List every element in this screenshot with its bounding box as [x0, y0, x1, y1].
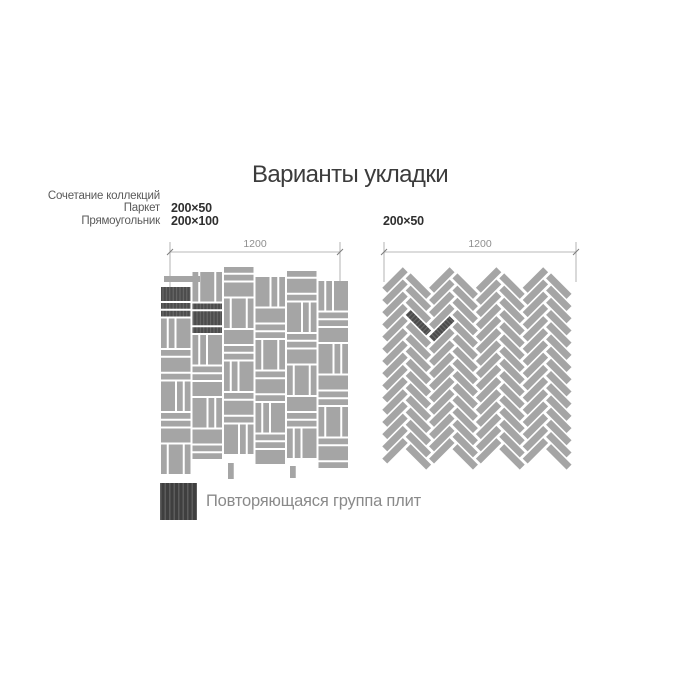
dimension-label-left: 1200	[243, 238, 267, 250]
tile-size-200x100: 200×100	[171, 215, 219, 228]
right-tile-sizes: 200×50	[383, 215, 424, 228]
tile-size-200x50: 200×50	[383, 215, 424, 228]
collection-note-line-2: Паркет	[8, 202, 160, 214]
legend-label: Повторяющаяся группа плит	[206, 492, 421, 511]
collection-note: Сочетание коллекций Паркет Прямоугольник	[8, 190, 160, 227]
left-tile-sizes: 200×50 200×100	[171, 202, 219, 228]
page-title: Варианты укладки	[0, 161, 700, 189]
herringbone-layout-diagram: 1200	[370, 230, 590, 492]
layout-options-poster: Варианты укладки Сочетание коллекций Пар…	[0, 0, 700, 700]
herringbone-tiles	[382, 267, 571, 469]
parquet-layout-diagram: 1200	[140, 230, 370, 492]
collection-note-line-1: Сочетание коллекций	[8, 190, 160, 202]
parquet-tiles	[161, 267, 348, 479]
collection-note-line-3: Прямоугольник	[8, 215, 160, 227]
dimension-label-right: 1200	[468, 238, 492, 250]
legend: Повторяющаяся группа плит	[160, 483, 421, 520]
repeating-group-swatch-icon	[160, 483, 197, 520]
